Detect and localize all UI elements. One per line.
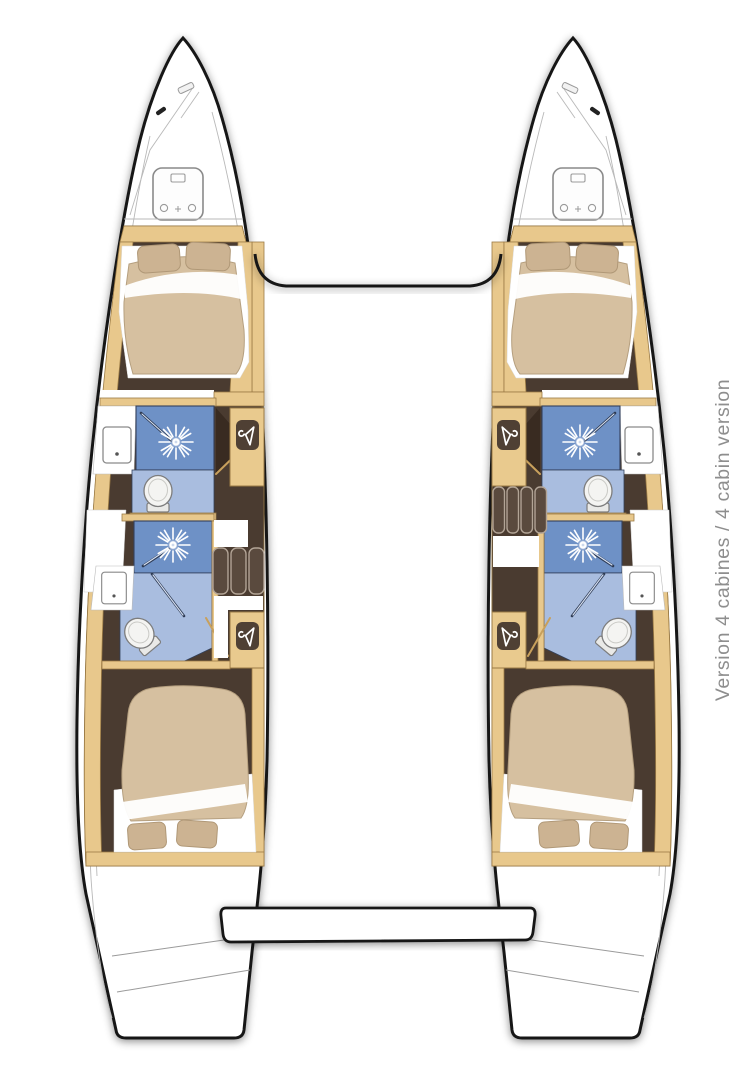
catamaran-floorplan: Version 4 cabines / 4 cabin version: [0, 0, 756, 1080]
bow-trampoline-beam: [255, 254, 501, 286]
version-caption: Version 4 cabines / 4 cabin version: [712, 379, 734, 701]
floorplan-canvas: Version 4 cabines / 4 cabin version: [0, 0, 756, 1080]
aft-swim-platform: [221, 908, 535, 942]
